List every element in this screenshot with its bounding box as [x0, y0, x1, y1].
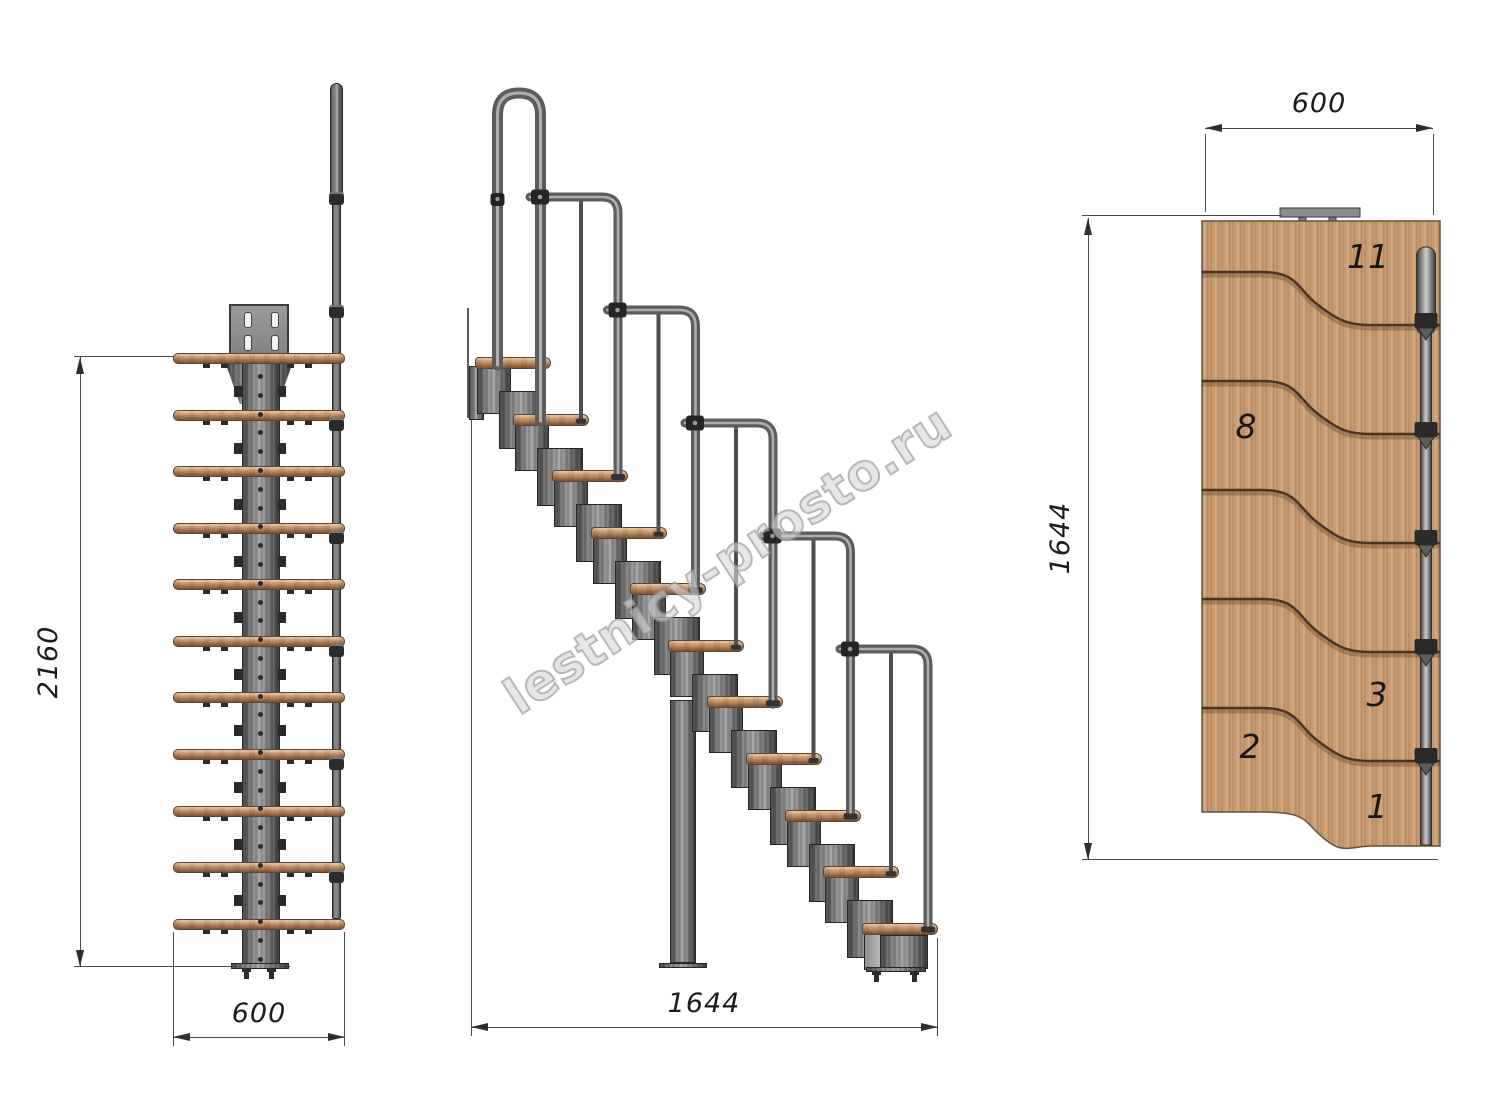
tread-number: 1 — [1347, 787, 1407, 826]
arrow-left-icon — [173, 1033, 190, 1041]
tread-side — [823, 866, 899, 878]
post-joint — [329, 870, 344, 883]
column-bolt — [258, 675, 263, 680]
tread-number: 2 — [1220, 727, 1280, 766]
column-tab — [278, 556, 286, 567]
column-bolt — [258, 506, 263, 511]
column-tab — [234, 669, 242, 680]
dim-ext-right — [937, 938, 938, 1036]
column-tab — [278, 499, 286, 510]
anchor-bolt — [269, 972, 274, 979]
arrow-left-icon — [1205, 124, 1222, 132]
drawing-overlay — [0, 0, 1500, 1114]
tread-side — [668, 640, 744, 652]
dim-line-width — [173, 1037, 345, 1038]
tread-bracket — [287, 702, 294, 707]
arrow-down-icon — [76, 950, 84, 967]
tread-side — [591, 527, 667, 539]
tread-side — [707, 696, 783, 708]
anchor-bolt — [874, 975, 879, 982]
column-bolt — [258, 374, 263, 379]
column-tab — [234, 556, 242, 567]
staircase-drawing: 2160 600 — [0, 0, 1500, 1114]
column-tab — [278, 725, 286, 736]
anchor-bolt — [912, 975, 917, 982]
side-length-label: 1644 — [654, 988, 754, 1019]
dim-line-length — [1088, 218, 1089, 860]
column-tab — [278, 669, 286, 680]
column-bolt — [258, 656, 263, 661]
column-tab — [278, 895, 286, 906]
column-tab — [278, 839, 286, 850]
tread-bracket — [203, 702, 210, 707]
post-joint — [329, 644, 344, 657]
column-bolt — [258, 600, 263, 605]
column-tab — [278, 612, 286, 623]
column-tab — [234, 839, 242, 850]
column-tab — [234, 443, 242, 454]
column-bolt — [258, 393, 263, 398]
column-tab — [234, 895, 242, 906]
column-bolt — [258, 750, 263, 755]
column-bolt — [258, 788, 263, 793]
support-column — [670, 700, 696, 963]
front-height-label: 2160 — [33, 622, 67, 702]
post-joint — [329, 531, 344, 544]
column-tab — [278, 782, 286, 793]
column-bolt — [258, 863, 263, 868]
dim-line-width — [1205, 128, 1433, 129]
post-joint — [329, 418, 344, 431]
top-length-label: 1644 — [1045, 498, 1079, 578]
column-tab — [234, 725, 242, 736]
column-base-flange — [231, 963, 289, 969]
arrow-up-icon — [76, 357, 84, 374]
tread-side — [552, 470, 628, 482]
tread-number: 11 — [1338, 237, 1398, 276]
arrow-right-icon — [328, 1033, 345, 1041]
dim-ext-right — [1433, 134, 1434, 215]
tread-side — [513, 414, 589, 426]
anchor-bolt — [244, 972, 249, 979]
arrow-left-icon — [471, 1023, 488, 1031]
dim-line-length — [471, 1027, 938, 1028]
handrail-loop-edge — [330, 83, 343, 200]
tread-side — [862, 923, 938, 935]
top-width-label: 600 — [1269, 88, 1369, 119]
dim-ext-top — [1082, 215, 1282, 216]
column-tab — [278, 386, 286, 397]
dim-ext-left — [1205, 134, 1206, 212]
wall-mount-plate — [229, 304, 289, 356]
column-bolt — [258, 581, 263, 586]
arrow-right-icon — [1416, 124, 1433, 132]
column-bolt — [258, 412, 263, 417]
base-module-block — [880, 935, 928, 969]
post-joint — [329, 757, 344, 770]
column-tab — [234, 386, 242, 397]
column-tab — [234, 782, 242, 793]
column-bolt — [258, 882, 263, 887]
column-tab — [234, 499, 242, 510]
tread-front — [173, 353, 345, 364]
dim-ext-right — [344, 932, 345, 1046]
column-bolt — [258, 844, 263, 849]
tread-bracket — [221, 702, 228, 707]
front-width-label: 600 — [209, 998, 309, 1029]
dim-ext-bottom — [1082, 859, 1438, 860]
support-column-flange — [659, 963, 707, 968]
tread-side — [746, 753, 822, 765]
column-bolt — [258, 694, 263, 699]
post-joint — [329, 305, 344, 318]
tread-bracket — [305, 702, 312, 707]
column-bolt — [258, 938, 263, 943]
arrow-down-icon — [1084, 843, 1092, 860]
column-bolt — [258, 957, 263, 962]
dim-ext-left — [471, 420, 472, 1036]
dim-line-height — [80, 357, 81, 967]
tread-number: 8 — [1216, 407, 1276, 446]
column-bolt — [258, 562, 263, 567]
tread-side — [475, 357, 551, 369]
tread-side — [785, 810, 861, 822]
arrow-right-icon — [921, 1023, 938, 1031]
tread-side — [630, 583, 706, 595]
column-bolt — [258, 468, 263, 473]
dim-ext-left — [173, 932, 174, 1046]
plate-slot — [271, 335, 279, 351]
arrow-up-icon — [1084, 218, 1092, 235]
plate-slot — [271, 312, 279, 328]
post-joint — [329, 192, 344, 205]
tread-number: 3 — [1347, 675, 1407, 714]
plate-slot — [244, 312, 252, 328]
plate-slot — [244, 335, 252, 351]
column-bolt — [258, 769, 263, 774]
column-tab — [278, 443, 286, 454]
column-tab — [234, 612, 242, 623]
column-bolt — [258, 487, 263, 492]
